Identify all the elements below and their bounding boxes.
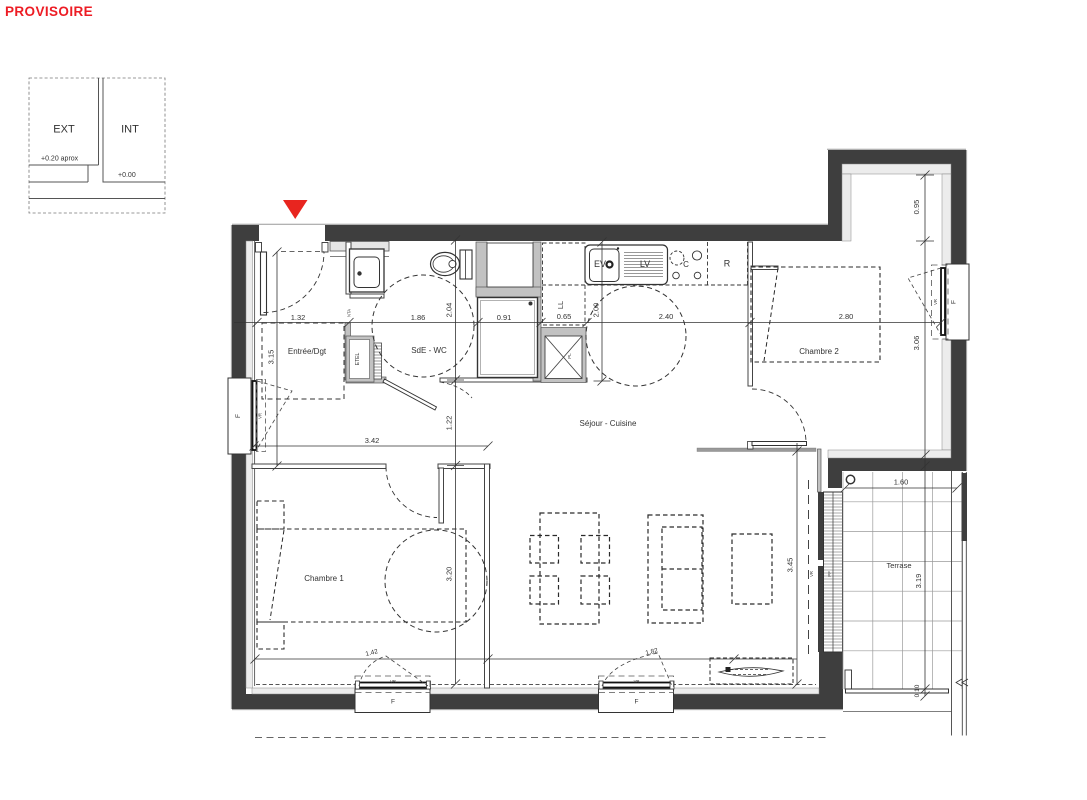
- svg-text:VR: VR: [634, 679, 640, 684]
- svg-text:2.40: 2.40: [659, 312, 674, 321]
- svg-text:PF: PF: [827, 571, 832, 577]
- svg-text:+0.20 aprox: +0.20 aprox: [41, 156, 79, 163]
- svg-text:F: F: [391, 699, 395, 706]
- svg-text:1.86: 1.86: [411, 313, 426, 322]
- svg-text:3.06: 3.06: [912, 336, 921, 351]
- svg-text:1.60: 1.60: [894, 478, 909, 487]
- svg-text:3.20: 3.20: [445, 567, 454, 582]
- svg-text:1.32: 1.32: [291, 313, 306, 322]
- svg-text:+0.00: +0.00: [118, 172, 136, 179]
- svg-text:3.15: 3.15: [267, 350, 276, 365]
- svg-text:2.80: 2.80: [839, 312, 854, 321]
- svg-text:EV: EV: [594, 259, 606, 269]
- svg-text:3.42: 3.42: [365, 436, 380, 445]
- svg-text:R: R: [724, 259, 731, 269]
- svg-text:0.91: 0.91: [497, 313, 512, 322]
- svg-text:Chambre 2: Chambre 2: [799, 347, 839, 356]
- svg-text:F: F: [951, 300, 958, 304]
- svg-text:VR: VR: [258, 413, 263, 419]
- svg-text:VR: VR: [390, 679, 396, 684]
- svg-text:VR: VR: [933, 299, 938, 305]
- svg-text:0.10: 0.10: [914, 684, 921, 697]
- svg-text:SdE - WC: SdE - WC: [411, 346, 447, 355]
- svg-text:INT: INT: [121, 124, 139, 136]
- svg-text:PL: PL: [567, 353, 572, 359]
- svg-text:EXT: EXT: [53, 124, 75, 136]
- svg-text:LV: LV: [640, 259, 650, 269]
- svg-text:0.95: 0.95: [912, 200, 921, 215]
- svg-text:VR: VR: [809, 571, 814, 577]
- svg-text:PROVISOIRE: PROVISOIRE: [5, 4, 93, 19]
- svg-text:2.00: 2.00: [592, 303, 601, 318]
- svg-text:1.22: 1.22: [445, 416, 454, 431]
- svg-text:F: F: [235, 414, 242, 418]
- svg-text:F: F: [635, 699, 639, 706]
- svg-text:LL: LL: [556, 301, 565, 309]
- svg-text:Terrase: Terrase: [886, 561, 911, 570]
- svg-text:3.19: 3.19: [914, 574, 923, 589]
- svg-text:ETEL: ETEL: [355, 353, 361, 366]
- svg-text:C: C: [683, 260, 689, 269]
- svg-text:Entrée/Dgt: Entrée/Dgt: [288, 347, 327, 356]
- svg-text:Séjour - Cuisine: Séjour - Cuisine: [580, 419, 637, 428]
- svg-text:3.45: 3.45: [786, 558, 795, 573]
- svg-text:NTA: NTA: [347, 309, 352, 317]
- svg-text:Chambre 1: Chambre 1: [304, 574, 344, 583]
- svg-text:2.04: 2.04: [445, 303, 454, 318]
- svg-text:0.65: 0.65: [557, 312, 572, 321]
